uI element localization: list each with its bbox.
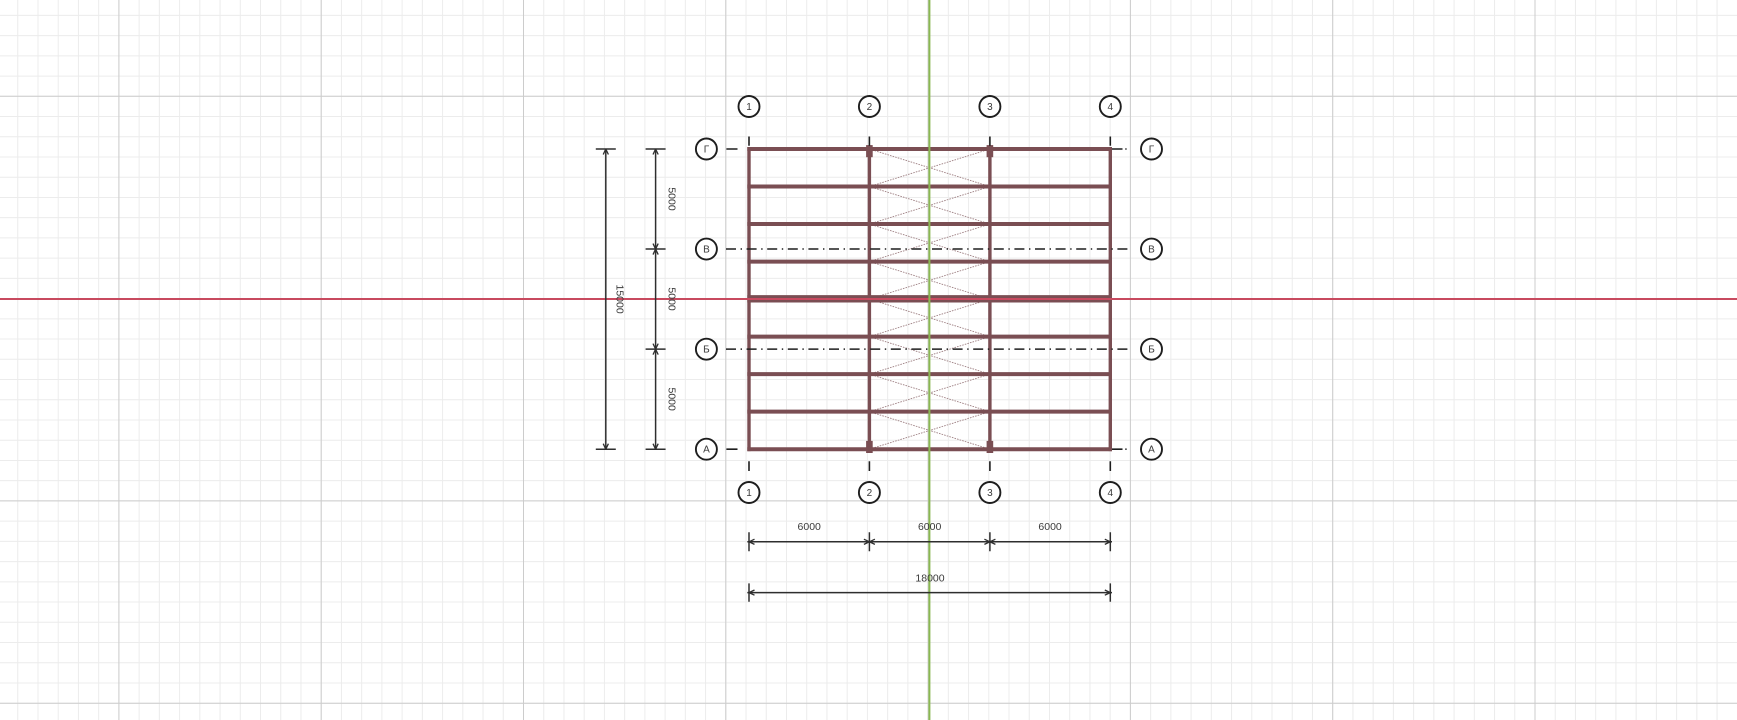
- svg-text:4: 4: [1108, 102, 1114, 113]
- svg-text:Г: Г: [704, 144, 710, 155]
- svg-text:5000: 5000: [665, 287, 677, 311]
- svg-text:Б: Б: [1148, 344, 1155, 355]
- svg-text:5000: 5000: [665, 187, 677, 211]
- svg-text:6000: 6000: [798, 521, 822, 533]
- svg-text:Б: Б: [703, 344, 710, 355]
- svg-text:2: 2: [867, 488, 873, 499]
- svg-text:1: 1: [746, 488, 752, 499]
- svg-text:3: 3: [987, 102, 993, 113]
- svg-text:А: А: [1148, 445, 1155, 456]
- svg-text:5000: 5000: [665, 387, 677, 411]
- svg-text:18000: 18000: [915, 573, 944, 585]
- svg-text:6000: 6000: [1038, 521, 1062, 533]
- svg-text:15000: 15000: [614, 284, 626, 313]
- svg-text:3: 3: [987, 488, 993, 499]
- svg-text:6000: 6000: [918, 521, 942, 533]
- svg-text:А: А: [703, 445, 710, 456]
- svg-text:В: В: [703, 244, 710, 255]
- svg-text:2: 2: [867, 102, 873, 113]
- svg-text:1: 1: [746, 102, 752, 113]
- svg-text:Г: Г: [1149, 144, 1155, 155]
- svg-text:В: В: [1148, 244, 1155, 255]
- svg-text:4: 4: [1108, 488, 1114, 499]
